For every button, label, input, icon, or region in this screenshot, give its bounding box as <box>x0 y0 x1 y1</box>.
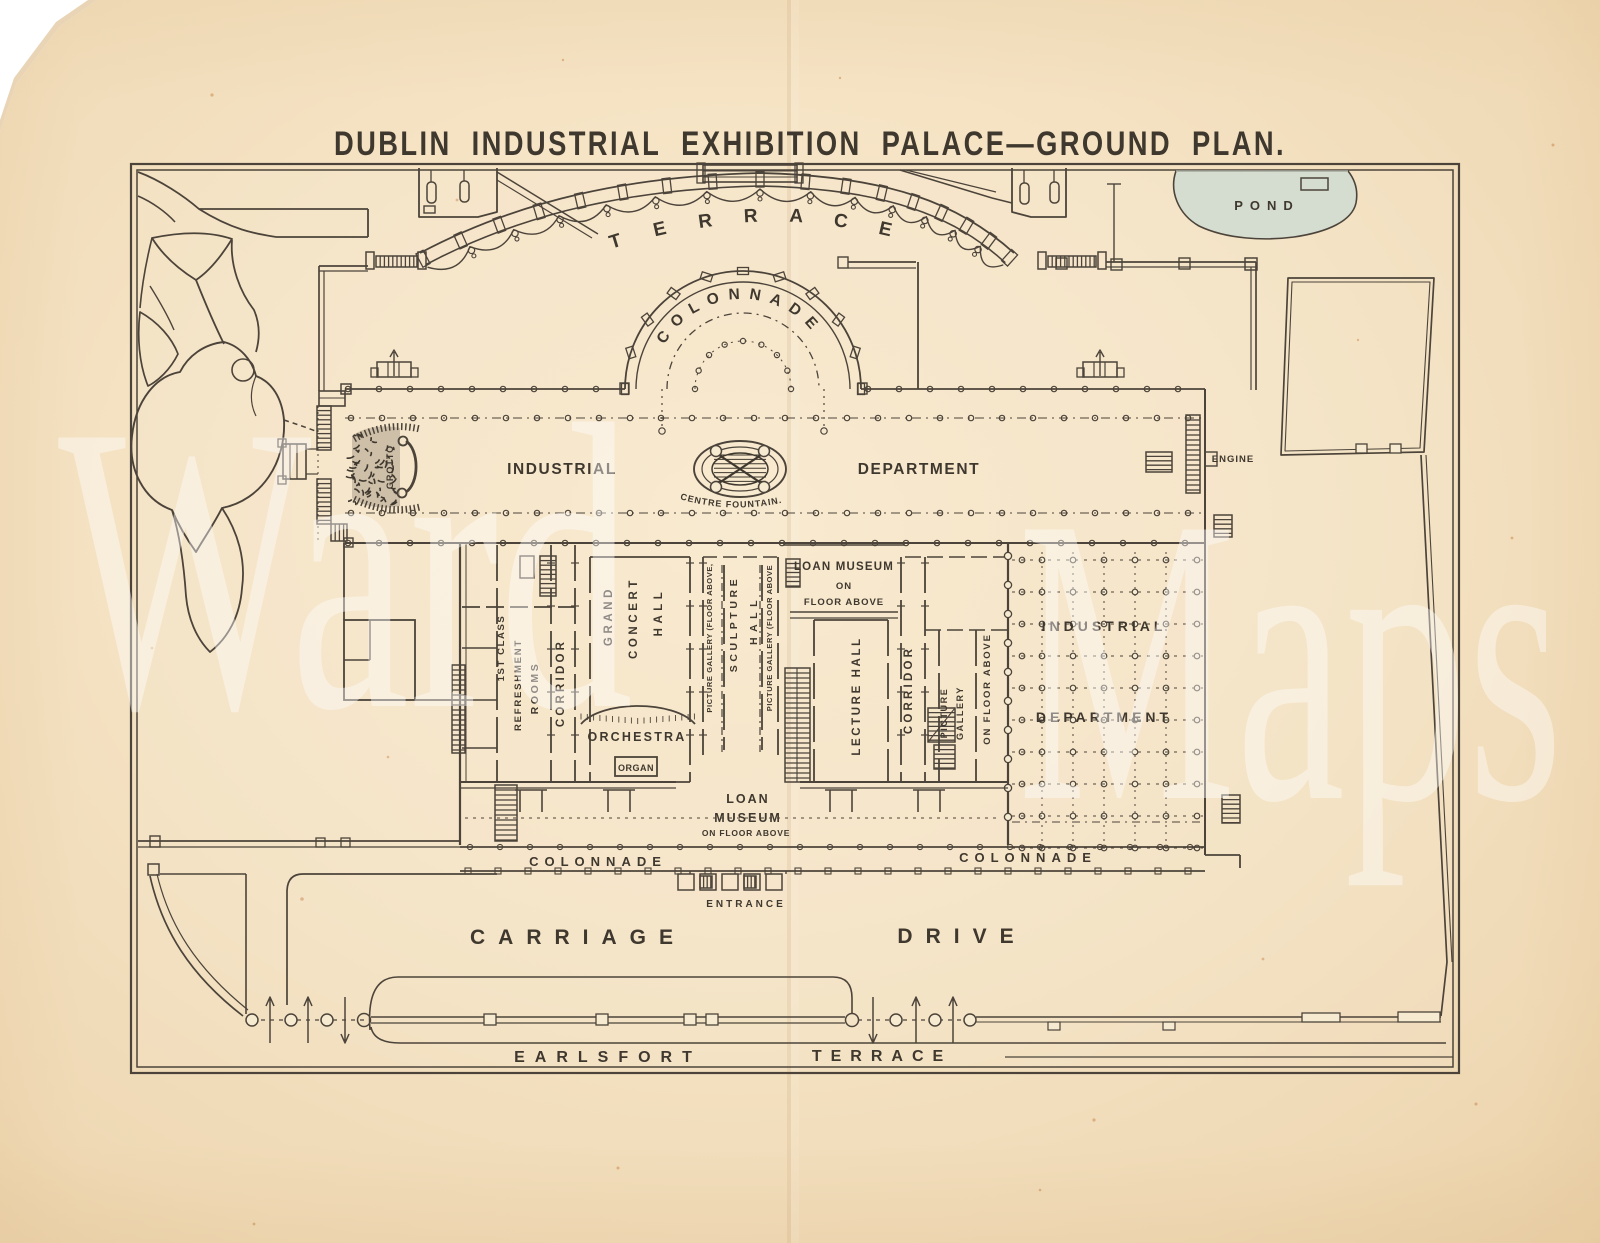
svg-text:PICTURE: PICTURE <box>939 688 949 739</box>
svg-text:R: R <box>743 206 758 228</box>
svg-text:Ward: Ward <box>58 341 633 795</box>
svg-text:CORRIDOR: CORRIDOR <box>903 646 915 734</box>
svg-text:PICTURE GALLERY (FLOOR ABOVE: PICTURE GALLERY (FLOOR ABOVE <box>765 565 774 712</box>
svg-text:CARRIAGE: CARRIAGE <box>470 926 686 949</box>
svg-text:SCULPTURE: SCULPTURE <box>728 576 740 673</box>
svg-text:GALLERY: GALLERY <box>955 686 965 740</box>
svg-text:ENTRANCE: ENTRANCE <box>706 899 786 910</box>
svg-text:LOAN MUSEUM: LOAN MUSEUM <box>794 561 894 573</box>
svg-text:HALL: HALL <box>653 588 665 637</box>
svg-text:DRIVE: DRIVE <box>897 925 1026 948</box>
svg-text:LOAN: LOAN <box>726 792 769 806</box>
svg-text:DEPARTMENT: DEPARTMENT <box>858 461 981 478</box>
svg-text:ON FLOOR ABOVE: ON FLOOR ABOVE <box>982 633 993 744</box>
svg-text:COLONNADE: COLONNADE <box>529 854 667 869</box>
svg-text:LECTURE HALL: LECTURE HALL <box>851 636 863 755</box>
svg-text:PICTURE GALLERY (FLOOR ABOVE,: PICTURE GALLERY (FLOOR ABOVE, <box>705 563 714 712</box>
svg-text:POND: POND <box>1234 198 1300 213</box>
svg-text:HALL: HALL <box>748 595 760 645</box>
svg-text:EARLSFORT: EARLSFORT <box>514 1049 702 1066</box>
svg-text:ON FLOOR ABOVE: ON FLOOR ABOVE <box>702 828 790 838</box>
svg-text:A: A <box>789 206 804 228</box>
svg-text:ON: ON <box>836 581 852 592</box>
svg-text:FLOOR ABOVE: FLOOR ABOVE <box>804 597 884 608</box>
svg-text:Maps: Maps <box>1018 433 1563 888</box>
svg-text:TERRACE: TERRACE <box>812 1048 952 1065</box>
svg-text:DUBLIN INDUSTRIAL EXHIBITION: DUBLIN INDUSTRIAL EXHIBITION PALACE—GROU… <box>334 125 1286 163</box>
